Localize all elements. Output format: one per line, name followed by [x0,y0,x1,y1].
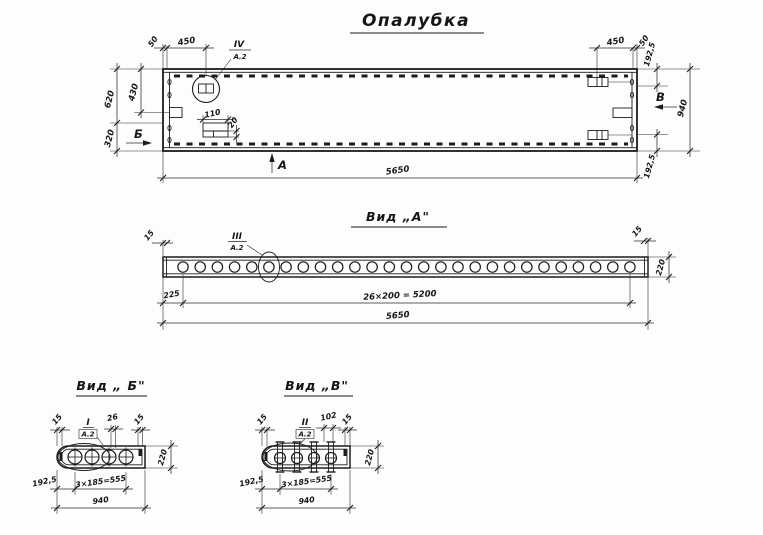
dim-940-b: 940 [92,495,110,506]
callout-iv-ref: А.2 [233,53,247,61]
dim-bottom: А 5650 [157,151,643,183]
drawing-sheet: Опалубка [0,0,763,535]
section-label-v: В [656,90,665,104]
dim-5650-main: 5650 [385,164,410,177]
view-a-title: Вид „А" [366,209,430,224]
view-b-left-slot [60,452,63,461]
formwork-drawing: Опалубка [0,0,763,535]
view-v-right-slot [344,449,347,456]
dim-15-b-right: 15 [132,412,146,427]
view-v-title: Вид „В" [285,378,349,393]
dim-220-b: 220 [156,448,169,467]
dim-102-v: 102 [320,410,338,422]
callout-i-ref: А.2 [81,431,95,439]
left-tab [170,108,183,118]
dim-15-v-left: 15 [255,412,269,427]
dim-320: 320 [103,129,117,149]
plate-detail: 110 20 [197,107,240,143]
view-a: Вид „А" III А.2 15 15 [142,209,676,330]
dim-430: 430 [127,83,142,104]
callout-ii: II А.2 [296,418,314,444]
dim-220-a: 220 [654,258,667,277]
view-b: Вид „ Б" I А.2 15 26 [31,378,178,514]
main-title: Опалубка [362,11,470,31]
dim-left-side: 620 430 320 Б [103,63,169,157]
dim-450-left: 450 [176,36,196,49]
callout-i-roman: I [86,418,90,428]
dim-pitch-v: 3×185=555 [281,473,333,489]
callout-iii-roman: III [232,232,243,242]
dim-220-v: 220 [363,448,376,467]
dim-pitch-a: 26×200 = 5200 [363,289,437,303]
main-view: Опалубка [103,11,700,183]
callout-iii: III А.2 [228,232,262,255]
dim-15-v-right: 15 [340,412,354,427]
callout-iii-ref: А.2 [230,244,244,252]
callout-ii-ref: А.2 [298,431,312,439]
right-tab [613,108,632,118]
callout-i: I А.2 [79,418,103,445]
clamp-upper [588,78,632,87]
dim-620: 620 [103,90,117,110]
dim-15-a-right: 15 [630,224,644,239]
dim-50-left: 50 [146,34,160,49]
dim-940-right: 940 [676,99,690,119]
section-label-a: А [277,158,287,172]
dim-pitch-b: 3×185=555 [75,473,127,489]
view-v-left-slot [265,452,268,461]
dim-940-v: 940 [298,495,316,506]
view-b-right-slot [139,449,142,456]
dim-5650-a: 5650 [386,310,411,322]
view-a-strip [163,257,648,277]
callout-ii-roman: II [302,418,309,428]
view-a-holes [178,262,635,272]
view-b-title: Вид „ Б" [76,378,145,393]
dim-plate-110: 110 [204,107,222,119]
dim-15-b-left: 15 [50,412,64,427]
dim-26-b: 26 [106,412,119,423]
dim-right-side: 192,5 940 192,5 В [637,41,700,180]
clamp-lower [588,131,632,140]
dim-225: 225 [163,289,181,301]
dim-450-right: 450 [605,36,625,49]
section-label-b: Б [134,127,143,141]
section-b-arrow [143,140,152,145]
section-a-arrow [269,153,274,162]
section-v-arrow [654,104,663,109]
view-v: Вид „В" II А.2 15 102 [238,378,384,514]
dim-192-bottom: 192,5 [642,153,657,180]
dim-192-b: 192,5 [31,474,58,488]
dim-192-v: 192,5 [238,474,265,488]
detail-circle-iv: IV А.2 [193,40,252,103]
callout-iv-roman: IV [234,40,245,50]
dim-topright: 450 50 [589,33,651,80]
dim-15-a-left: 15 [142,228,156,243]
view-b-holes [68,448,133,467]
